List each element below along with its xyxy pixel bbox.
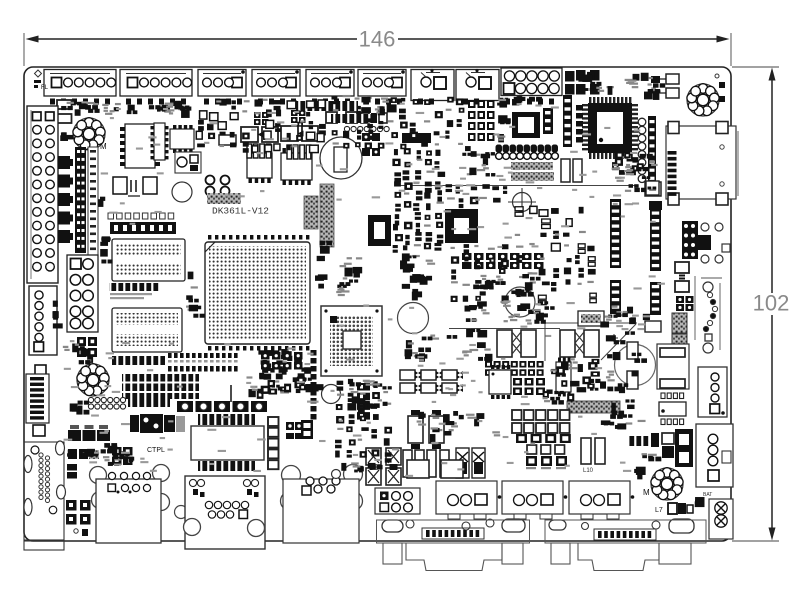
svg-text:M: M xyxy=(100,142,107,151)
svg-text:DK361L-V12: DK361L-V12 xyxy=(212,206,269,217)
svg-text:M: M xyxy=(643,488,650,497)
svg-text:FL: FL xyxy=(41,85,49,91)
svg-text:102: 102 xyxy=(753,291,790,316)
svg-text:L7: L7 xyxy=(655,507,663,514)
svg-text:146: 146 xyxy=(359,27,396,52)
svg-text:L10: L10 xyxy=(583,468,594,474)
svg-text:CTPL: CTPL xyxy=(147,447,165,454)
